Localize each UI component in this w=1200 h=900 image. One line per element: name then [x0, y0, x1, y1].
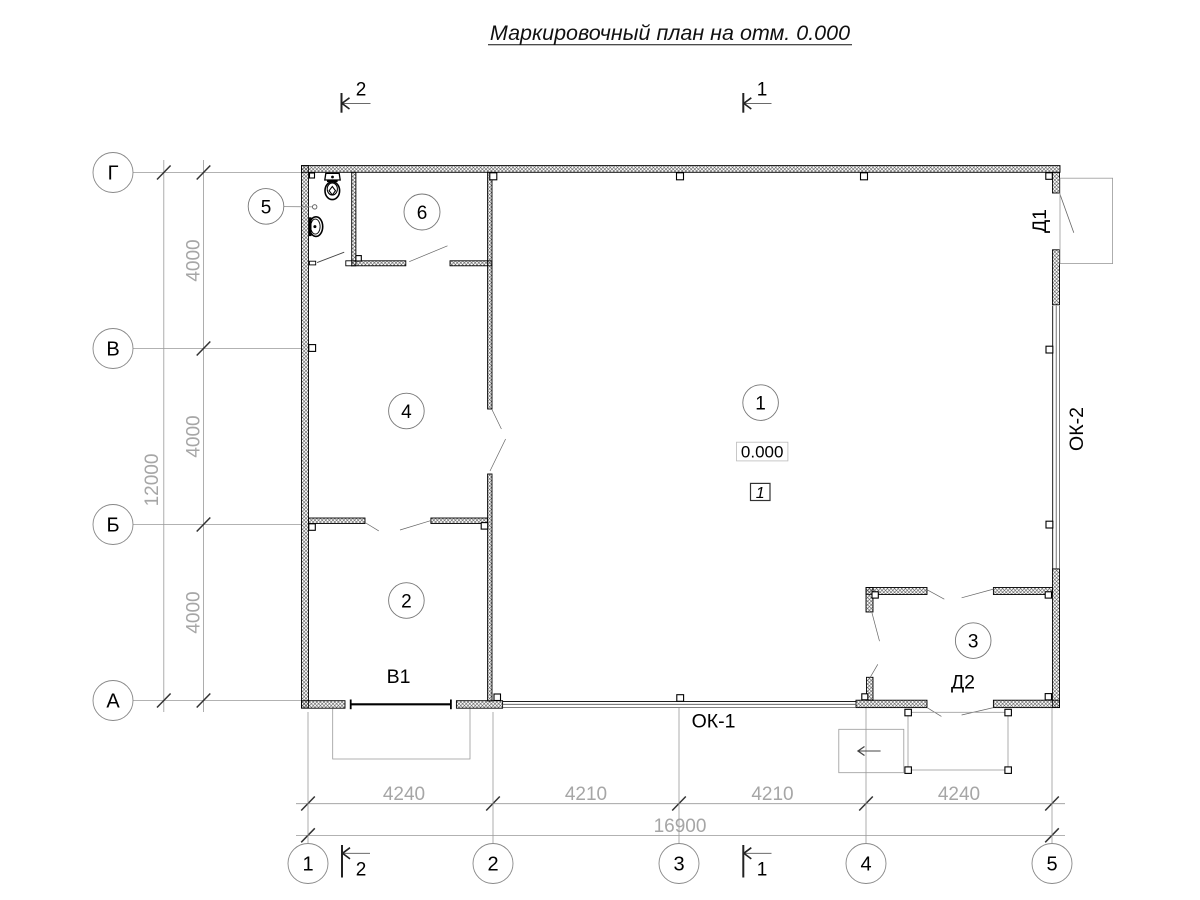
svg-text:4000: 4000 [184, 415, 205, 457]
svg-text:16900: 16900 [654, 816, 707, 837]
svg-text:Д2: Д2 [951, 672, 975, 694]
svg-text:1: 1 [302, 854, 313, 876]
svg-text:6: 6 [417, 203, 428, 224]
svg-text:Б: Б [106, 515, 119, 537]
svg-text:Маркировочный план на отм. 0.0: Маркировочный план на отм. 0.000 [490, 21, 850, 45]
svg-text:Д1: Д1 [1029, 209, 1051, 233]
svg-text:4210: 4210 [565, 784, 607, 805]
svg-text:4000: 4000 [184, 239, 205, 281]
svg-text:5: 5 [261, 197, 272, 218]
svg-text:3: 3 [968, 632, 979, 653]
svg-text:4240: 4240 [383, 784, 425, 805]
svg-text:3: 3 [673, 854, 684, 876]
svg-text:2: 2 [401, 592, 412, 613]
svg-text:0.000: 0.000 [741, 443, 784, 462]
svg-text:2: 2 [487, 854, 498, 876]
svg-text:В: В [106, 339, 119, 361]
svg-text:5: 5 [1046, 854, 1057, 876]
svg-text:2: 2 [356, 80, 367, 101]
svg-text:1: 1 [757, 80, 768, 101]
svg-text:А: А [106, 691, 120, 713]
svg-text:Г: Г [108, 163, 119, 185]
svg-text:4000: 4000 [184, 591, 205, 633]
svg-text:В1: В1 [387, 666, 411, 688]
svg-text:12000: 12000 [142, 454, 163, 507]
svg-text:4: 4 [860, 854, 871, 876]
svg-text:4240: 4240 [938, 784, 980, 805]
svg-text:ОК-2: ОК-2 [1066, 407, 1088, 451]
svg-text:1: 1 [755, 394, 766, 415]
svg-text:2: 2 [356, 860, 367, 881]
svg-text:4210: 4210 [751, 784, 793, 805]
svg-text:ОК-1: ОК-1 [692, 711, 736, 733]
svg-text:4: 4 [401, 402, 412, 423]
svg-text:1: 1 [757, 860, 768, 881]
svg-text:1: 1 [756, 485, 765, 502]
